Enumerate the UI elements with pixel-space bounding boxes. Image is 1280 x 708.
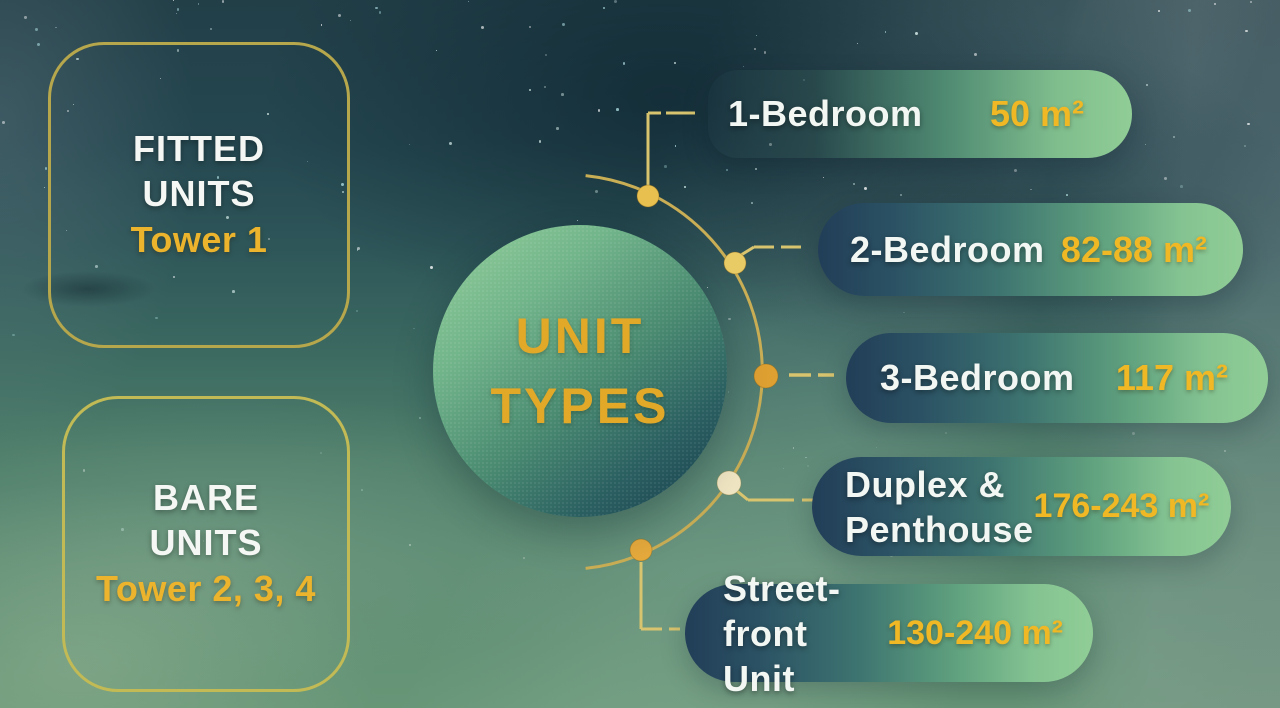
pill-label: Duplex & Penthouse (845, 462, 1034, 552)
star-speckle (529, 26, 531, 28)
star-speckle (556, 127, 559, 130)
star-speckle (409, 544, 411, 546)
star-speckle (1188, 9, 1191, 12)
star-speckle (751, 202, 753, 204)
star-speckle (350, 20, 351, 21)
star-speckle (945, 432, 947, 434)
pill-label-line: Penthouse (845, 507, 1034, 552)
star-speckle (210, 28, 212, 30)
star-speckle (198, 3, 199, 4)
star-speckle (529, 89, 531, 91)
connector-line (741, 247, 754, 255)
star-speckle (1244, 145, 1246, 147)
star-speckle (885, 31, 887, 33)
star-speckle (728, 318, 731, 321)
pill-label-line: 1-Bedroom (728, 92, 923, 136)
star-speckle (1245, 30, 1248, 33)
pill-area-value: 117 m² (1116, 357, 1228, 399)
star-speckle (357, 247, 360, 250)
star-speckle (1164, 177, 1167, 180)
circle-title-line: TYPES (491, 371, 670, 441)
pill-label: 2-Bedroom (850, 228, 1045, 272)
star-speckle (623, 62, 625, 64)
star-speckle (755, 168, 757, 170)
star-speckle (356, 310, 357, 311)
star-speckle (577, 220, 578, 221)
star-speckle (598, 109, 601, 112)
star-speckle (707, 287, 709, 289)
star-speckle (468, 1, 469, 2)
unit-type-pill-2-bedroom: 2-Bedroom 82-88 m² (818, 203, 1243, 296)
box-title-line: UNITS (133, 171, 265, 216)
pill-label-line: 2-Bedroom (850, 228, 1045, 272)
fitted-units-box: FITTED UNITS Tower 1 (48, 42, 350, 348)
star-speckle (449, 142, 452, 145)
star-speckle (743, 66, 744, 67)
star-speckle (523, 557, 525, 559)
star-speckle (544, 86, 546, 88)
star-speckle (728, 391, 730, 393)
star-speckle (1250, 1, 1252, 3)
pill-label-line: Duplex & (845, 462, 1034, 507)
star-speckle (900, 194, 902, 196)
star-speckle (55, 27, 56, 28)
unit-type-pill-1-bedroom: 1-Bedroom 50 m² (708, 70, 1132, 158)
circle-title-line: UNIT (516, 301, 645, 371)
star-speckle (1158, 10, 1160, 12)
star-speckle (35, 28, 38, 31)
star-speckle (805, 457, 807, 459)
star-speckle (876, 447, 878, 449)
star-speckle (222, 0, 225, 3)
star-speckle (616, 108, 619, 111)
unit-type-pill-3-bedroom: 3-Bedroom 117 m² (846, 333, 1268, 423)
star-speckle (436, 50, 438, 52)
unit-type-pill-street-front: Street-front Unit 130-240 m² (685, 584, 1093, 682)
orbit-dot (724, 252, 746, 274)
star-speckle (24, 16, 26, 18)
star-speckle (754, 48, 756, 50)
star-speckle (539, 140, 541, 142)
pill-area-value: 130-240 m² (887, 614, 1063, 653)
unit-types-circle: UNIT TYPES (433, 225, 727, 517)
star-speckle (656, 113, 658, 115)
star-speckle (45, 167, 48, 170)
pill-label: 1-Bedroom (728, 92, 923, 136)
star-speckle (614, 0, 617, 3)
star-speckle (756, 35, 757, 36)
pill-area-value: 50 m² (990, 93, 1084, 135)
star-speckle (793, 447, 794, 448)
star-speckle (764, 51, 766, 53)
star-speckle (419, 417, 421, 419)
star-speckle (2, 121, 5, 124)
star-speckle (321, 24, 323, 26)
bare-units-title: BARE UNITS (150, 475, 263, 565)
star-speckle (12, 334, 14, 336)
pill-label-line: Unit (723, 656, 887, 701)
pill-label: 3-Bedroom (880, 356, 1075, 400)
star-speckle (604, 178, 606, 180)
star-speckle (1066, 194, 1068, 196)
pill-label-line: Street-front (723, 566, 887, 656)
star-speckle (915, 32, 918, 35)
box-title-line: FITTED (133, 126, 265, 171)
star-speckle (684, 186, 686, 188)
star-speckle (595, 190, 598, 193)
star-speckle (379, 11, 382, 14)
star-speckle (481, 26, 484, 29)
orbit-dot (754, 364, 778, 388)
star-speckle (375, 7, 378, 10)
star-speckle (603, 7, 605, 9)
fitted-units-tower-label: Tower 1 (131, 216, 268, 264)
star-speckle (561, 93, 564, 96)
star-speckle (177, 8, 180, 11)
star-speckle (1111, 299, 1112, 300)
star-speckle (1224, 450, 1226, 452)
star-speckle (37, 43, 40, 46)
star-speckle (338, 14, 341, 17)
star-speckle (413, 328, 415, 330)
orbit-dot (630, 539, 652, 561)
pill-label: Street-front Unit (723, 566, 887, 701)
star-speckle (1145, 144, 1146, 145)
star-speckle (783, 468, 784, 469)
star-speckle (1030, 189, 1031, 190)
star-speckle (409, 144, 410, 145)
star-speckle (974, 53, 977, 56)
unit-type-pill-duplex-penthouse: Duplex & Penthouse 176-243 m² (812, 457, 1231, 556)
star-speckle (1247, 123, 1250, 126)
pill-area-value: 82-88 m² (1061, 229, 1207, 271)
star-speckle (675, 145, 677, 147)
star-speckle (1173, 136, 1175, 138)
star-speckle (823, 177, 824, 178)
orbit-dot (717, 471, 741, 495)
star-speckle (545, 54, 547, 56)
star-speckle (674, 62, 676, 64)
star-speckle (173, 0, 174, 1)
star-speckle (430, 266, 433, 269)
star-speckle (1146, 84, 1148, 86)
bare-units-box: BARE UNITS Tower 2, 3, 4 (62, 396, 350, 692)
fitted-units-title: FITTED UNITS (133, 126, 265, 216)
star-speckle (1214, 3, 1217, 6)
pill-area-value: 176-243 m² (1034, 487, 1210, 526)
star-speckle (857, 43, 858, 44)
star-speckle (903, 312, 905, 314)
star-speckle (562, 23, 565, 26)
star-speckle (1132, 432, 1135, 435)
star-speckle (1180, 185, 1183, 188)
slide-background: FITTED UNITS Tower 1 BARE UNITS Tower 2,… (0, 0, 1280, 708)
star-speckle (361, 489, 363, 491)
orbit-dot (637, 185, 659, 207)
box-title-line: BARE (150, 475, 263, 520)
star-speckle (44, 187, 45, 188)
star-speckle (176, 13, 177, 14)
star-speckle (807, 465, 810, 468)
star-speckle (357, 249, 359, 251)
connector-line (737, 491, 748, 500)
star-speckle (726, 169, 728, 171)
star-speckle (853, 183, 855, 185)
pill-label-line: 3-Bedroom (880, 356, 1075, 400)
star-speckle (1014, 169, 1017, 172)
box-title-line: UNITS (150, 520, 263, 565)
star-speckle (864, 187, 867, 190)
bare-units-tower-label: Tower 2, 3, 4 (96, 565, 316, 613)
star-speckle (664, 165, 666, 167)
